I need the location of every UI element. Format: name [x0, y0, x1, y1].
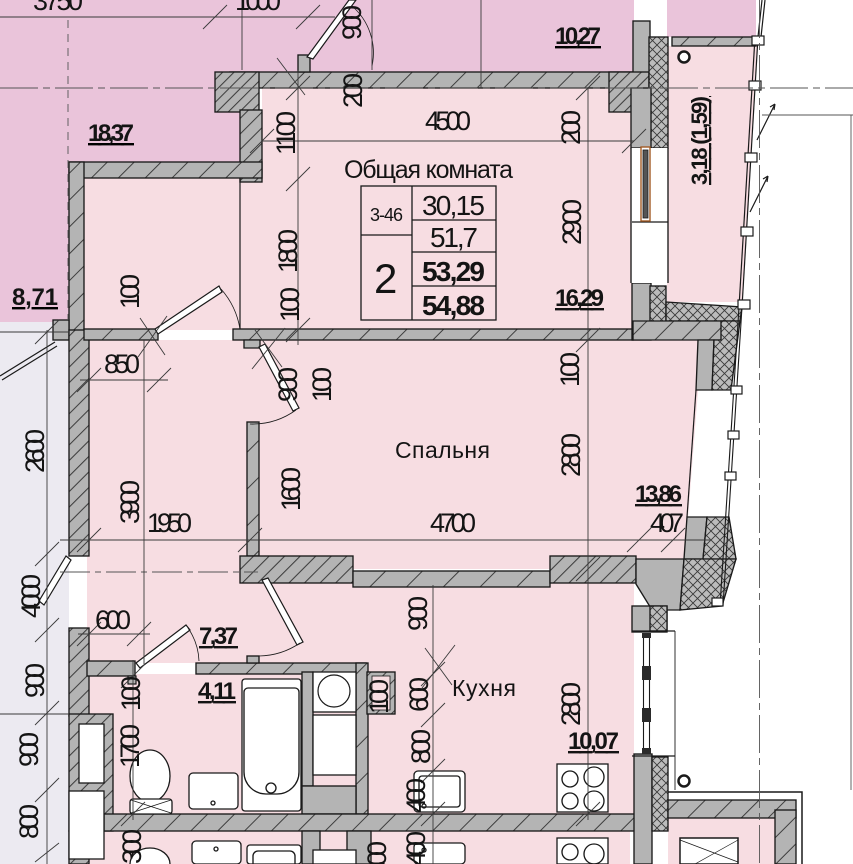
- svg-text:Кухня: Кухня: [452, 675, 516, 701]
- svg-text:10,07: 10,07: [568, 728, 619, 755]
- svg-text:300: 300: [117, 829, 147, 864]
- svg-text:Спальня: Спальня: [395, 437, 490, 463]
- svg-text:7,37: 7,37: [199, 623, 238, 650]
- svg-text:1600: 1600: [276, 467, 306, 511]
- svg-text:600: 600: [95, 605, 131, 635]
- svg-text:900: 900: [20, 663, 50, 698]
- svg-text:200: 200: [338, 73, 368, 108]
- svg-text:10,27: 10,27: [555, 23, 601, 50]
- svg-text:800: 800: [14, 804, 44, 839]
- svg-text:100: 100: [364, 679, 394, 714]
- svg-text:1000: 1000: [235, 0, 281, 16]
- svg-text:2: 2: [374, 255, 397, 302]
- svg-text:900: 900: [273, 367, 303, 402]
- svg-text:16,29: 16,29: [555, 285, 604, 312]
- svg-text:100: 100: [555, 352, 585, 387]
- svg-text:51,7: 51,7: [430, 222, 478, 253]
- svg-text:100: 100: [116, 676, 146, 711]
- svg-text:2800: 2800: [556, 682, 586, 726]
- svg-text:1950: 1950: [147, 508, 192, 538]
- svg-text:300: 300: [362, 841, 392, 864]
- svg-text:4000: 4000: [16, 574, 46, 618]
- svg-text:800: 800: [406, 729, 436, 764]
- svg-text:400: 400: [401, 778, 431, 813]
- svg-text:53,29: 53,29: [422, 256, 485, 287]
- svg-text:30,15: 30,15: [422, 190, 485, 221]
- svg-text:4700: 4700: [430, 508, 476, 538]
- svg-text:54,88: 54,88: [422, 290, 485, 321]
- svg-text:900: 900: [403, 596, 433, 631]
- svg-text:850: 850: [104, 349, 140, 379]
- svg-text:3,18 (1,59): 3,18 (1,59): [687, 96, 712, 185]
- svg-text:8,71: 8,71: [12, 284, 58, 311]
- svg-text:2600: 2600: [20, 429, 50, 473]
- svg-text:200: 200: [556, 110, 586, 145]
- svg-text:2800: 2800: [556, 433, 586, 477]
- svg-text:100: 100: [275, 287, 305, 322]
- svg-text:400: 400: [401, 831, 431, 864]
- svg-text:1700: 1700: [115, 724, 145, 768]
- svg-text:3750: 3750: [33, 0, 83, 16]
- svg-text:18,37: 18,37: [88, 120, 134, 147]
- svg-text:4,11: 4,11: [198, 678, 236, 705]
- svg-text:1100: 1100: [271, 111, 301, 155]
- svg-text:3-46: 3-46: [370, 205, 403, 225]
- svg-text:600: 600: [404, 677, 434, 712]
- svg-text:2900: 2900: [557, 199, 587, 245]
- svg-text:100: 100: [115, 274, 145, 309]
- svg-text:4500: 4500: [425, 106, 471, 136]
- svg-text:Общая комната: Общая комната: [344, 156, 513, 184]
- svg-text:1800: 1800: [273, 229, 303, 273]
- svg-text:13,86: 13,86: [635, 481, 682, 508]
- svg-text:900: 900: [14, 732, 44, 767]
- svg-text:900: 900: [337, 5, 367, 40]
- svg-text:3900: 3900: [115, 480, 145, 524]
- svg-text:100: 100: [307, 367, 337, 402]
- svg-text:407: 407: [650, 508, 684, 538]
